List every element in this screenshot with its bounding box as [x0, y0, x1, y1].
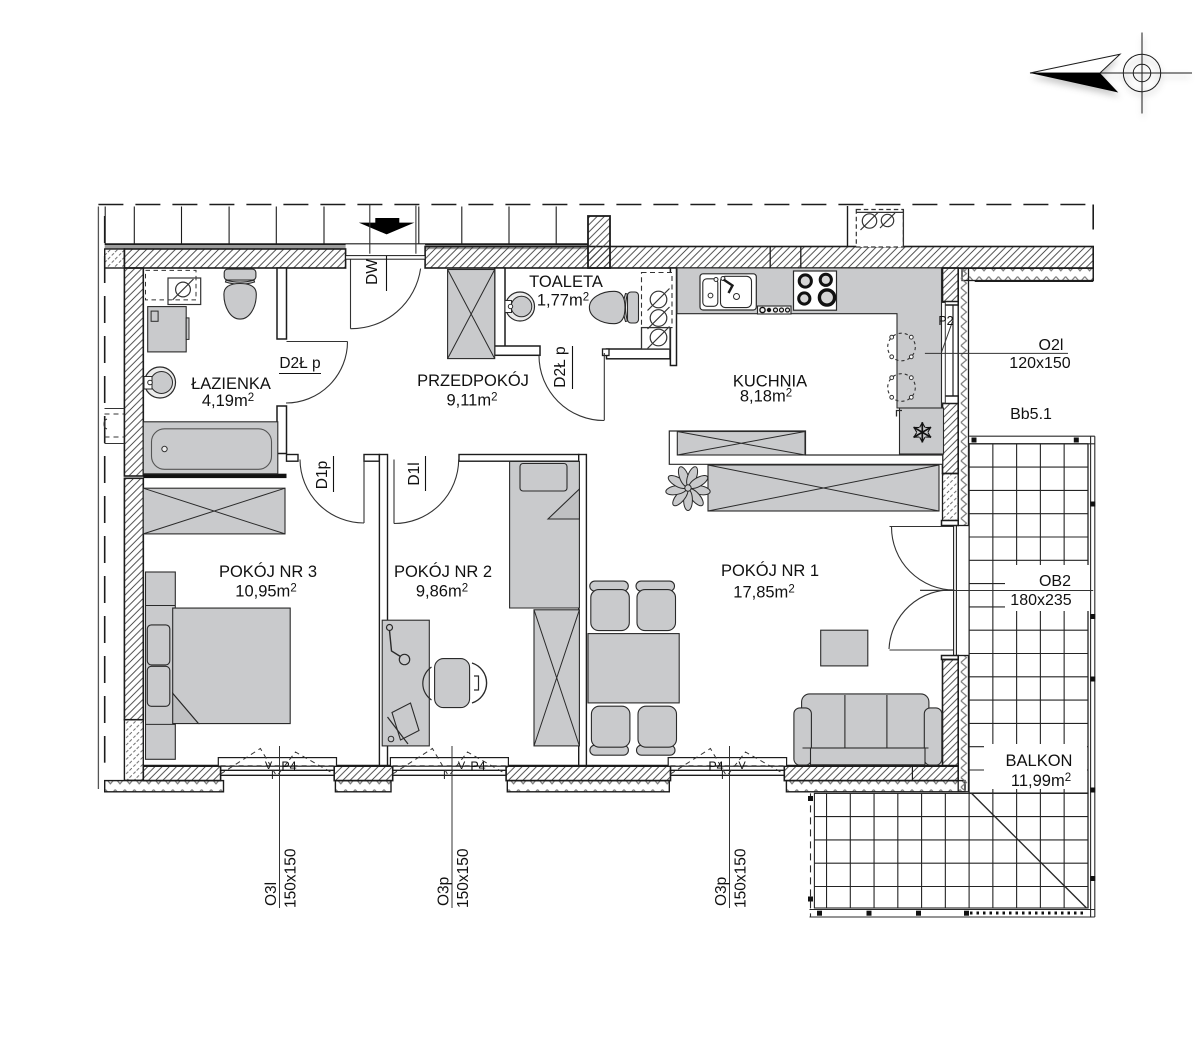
svg-text:D1l: D1l	[406, 462, 423, 485]
svg-text:BALKON: BALKON	[1006, 752, 1073, 770]
svg-text:150x150: 150x150	[733, 848, 750, 908]
svg-text:4,19m2: 4,19m2	[202, 392, 254, 410]
svg-text:O3p: O3p	[436, 877, 453, 906]
svg-text:POKÓJ NR 1: POKÓJ NR 1	[721, 561, 819, 580]
svg-text:150x150: 150x150	[455, 848, 472, 908]
svg-text:9,11m2: 9,11m2	[446, 392, 497, 410]
svg-text:P4: P4	[470, 760, 485, 774]
svg-text:V: V	[458, 760, 466, 772]
svg-text:P2: P2	[938, 314, 953, 328]
svg-text:ŁAZIENKA: ŁAZIENKA	[191, 375, 271, 393]
svg-text:9,86m2: 9,86m2	[416, 583, 468, 601]
svg-text:O3l: O3l	[263, 882, 280, 906]
svg-text:POKÓJ NR 2: POKÓJ NR 2	[394, 562, 492, 581]
svg-text:17,85m2: 17,85m2	[733, 584, 794, 602]
svg-text:11,99m2: 11,99m2	[1011, 772, 1071, 790]
svg-text:120x150: 120x150	[1009, 355, 1070, 372]
svg-text:P4: P4	[281, 760, 296, 774]
svg-text:V: V	[738, 760, 746, 772]
svg-text:D2Ł p: D2Ł p	[552, 346, 569, 387]
svg-text:Bb5.1: Bb5.1	[1010, 406, 1052, 423]
svg-text:180x235: 180x235	[1010, 592, 1071, 609]
svg-text:O3p: O3p	[713, 877, 730, 906]
svg-text:8,18m2: 8,18m2	[740, 388, 792, 406]
svg-text:PRZEDPOKÓJ: PRZEDPOKÓJ	[417, 371, 529, 390]
svg-text:D2Ł p: D2Ł p	[279, 355, 320, 372]
svg-text:P4: P4	[708, 760, 723, 774]
svg-text:DW: DW	[364, 259, 381, 285]
svg-text:OB2: OB2	[1039, 573, 1071, 590]
svg-text:10,95m2: 10,95m2	[235, 583, 296, 601]
svg-text:D1p: D1p	[314, 461, 331, 489]
svg-text:TOALETA: TOALETA	[529, 273, 603, 291]
svg-text:POKÓJ NR 3: POKÓJ NR 3	[219, 562, 317, 581]
svg-text:1,77m2: 1,77m2	[537, 292, 589, 310]
svg-text:V: V	[265, 760, 273, 772]
svg-text:O2l: O2l	[1039, 337, 1064, 354]
svg-text:150x150: 150x150	[283, 848, 300, 908]
